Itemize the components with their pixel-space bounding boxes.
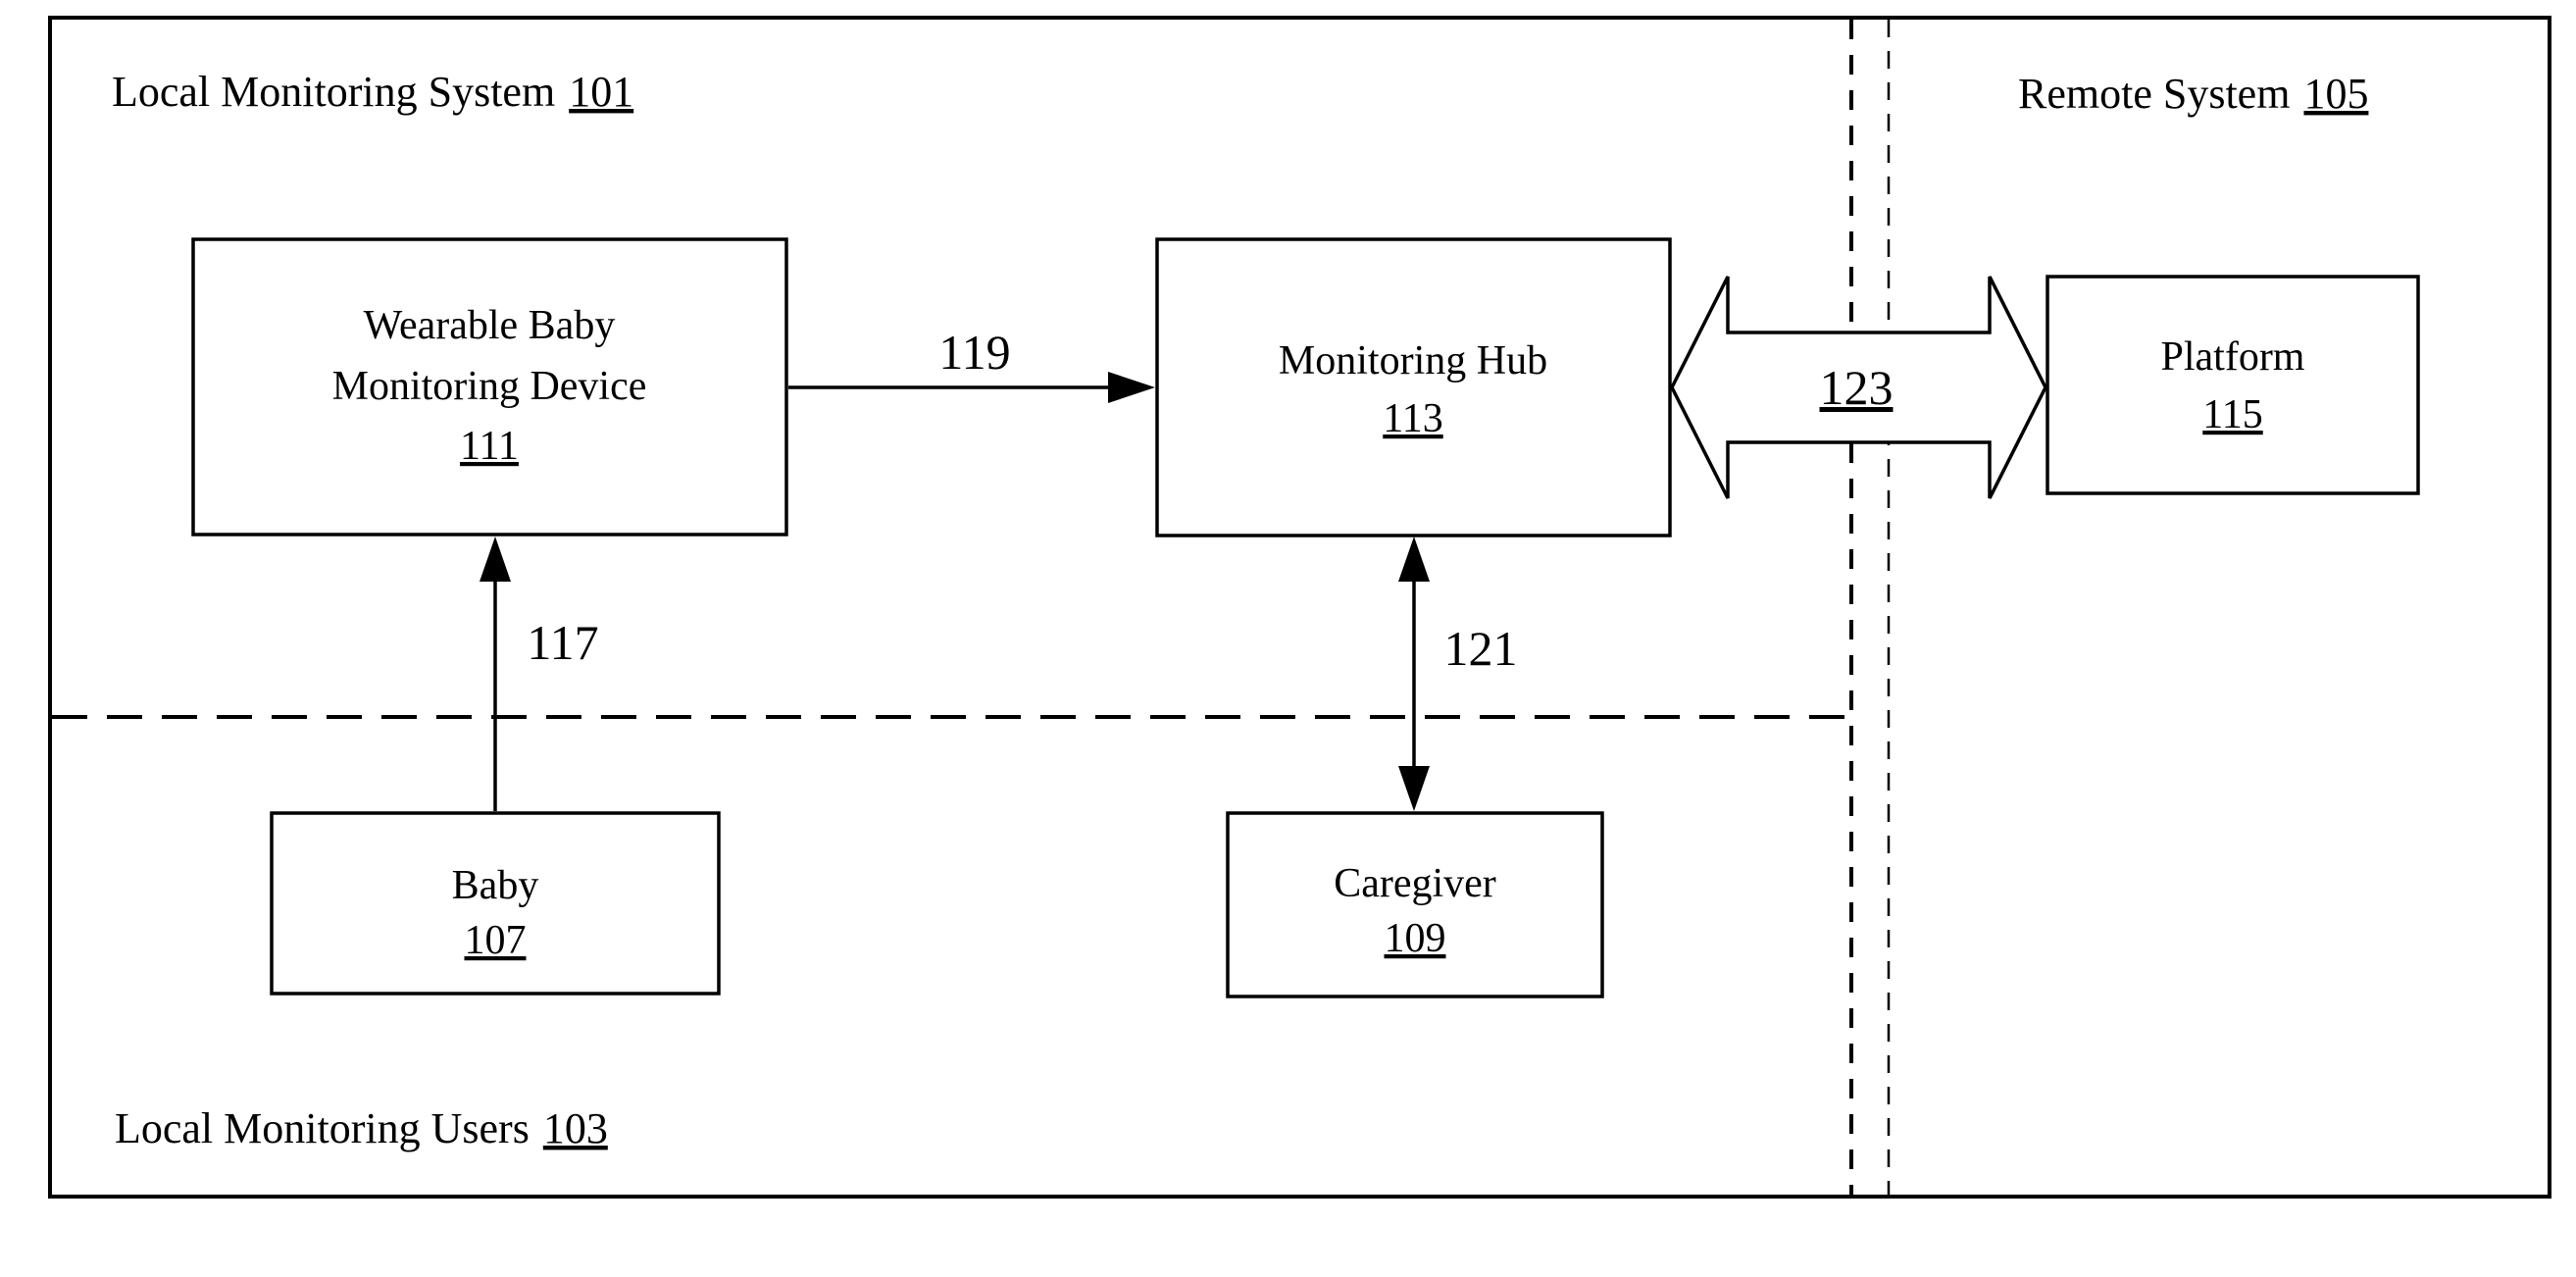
arrow-119-head-icon (1108, 372, 1155, 403)
remote-system-ref: 105 (2303, 70, 2368, 118)
baby-ref: 107 (465, 918, 527, 963)
local-monitoring-system-label-text: Local Monitoring System (112, 68, 555, 116)
outer-system-border (50, 18, 2550, 1197)
platform-box (2047, 277, 2418, 493)
monitoring-hub-label: Monitoring Hub (1279, 338, 1547, 383)
arrow-121-bottom-head-icon (1398, 766, 1430, 811)
platform-label: Platform (2161, 334, 2305, 380)
remote-system-label: Remote System105 (2018, 70, 2368, 118)
baby-label: Baby (452, 863, 539, 908)
arrow-121-top-head-icon (1398, 536, 1430, 582)
local-monitoring-users-label: Local Monitoring Users103 (115, 1104, 608, 1152)
arrow-121-ref: 121 (1444, 621, 1518, 676)
monitoring-hub-box (1157, 239, 1670, 536)
wearable-device-label-line1: Wearable Baby (364, 303, 616, 348)
wearable-device-ref: 111 (460, 424, 519, 469)
local-monitoring-users-ref: 103 (543, 1104, 608, 1152)
local-monitoring-users-label-text: Local Monitoring Users (115, 1104, 530, 1152)
baby-monitoring-system-diagram: Local Monitoring System101 Remote System… (0, 0, 2576, 1277)
wearable-device-label-line2: Monitoring Device (332, 364, 647, 409)
remote-system-label-text: Remote System (2018, 70, 2290, 118)
patent-figure-page: Local Monitoring System101 Remote System… (0, 0, 2576, 1277)
arrow-119-ref: 119 (938, 325, 1010, 380)
platform-ref: 115 (2202, 392, 2262, 437)
arrow-117-head-icon (480, 536, 511, 582)
arrow-117-ref: 117 (527, 615, 598, 670)
caregiver-label: Caregiver (1334, 861, 1496, 906)
local-monitoring-system-ref: 101 (569, 68, 633, 116)
monitoring-hub-ref: 113 (1383, 396, 1442, 441)
arrow-123-ref: 123 (1820, 360, 1894, 415)
caregiver-ref: 109 (1385, 916, 1446, 961)
local-monitoring-system-label: Local Monitoring System101 (112, 68, 633, 116)
